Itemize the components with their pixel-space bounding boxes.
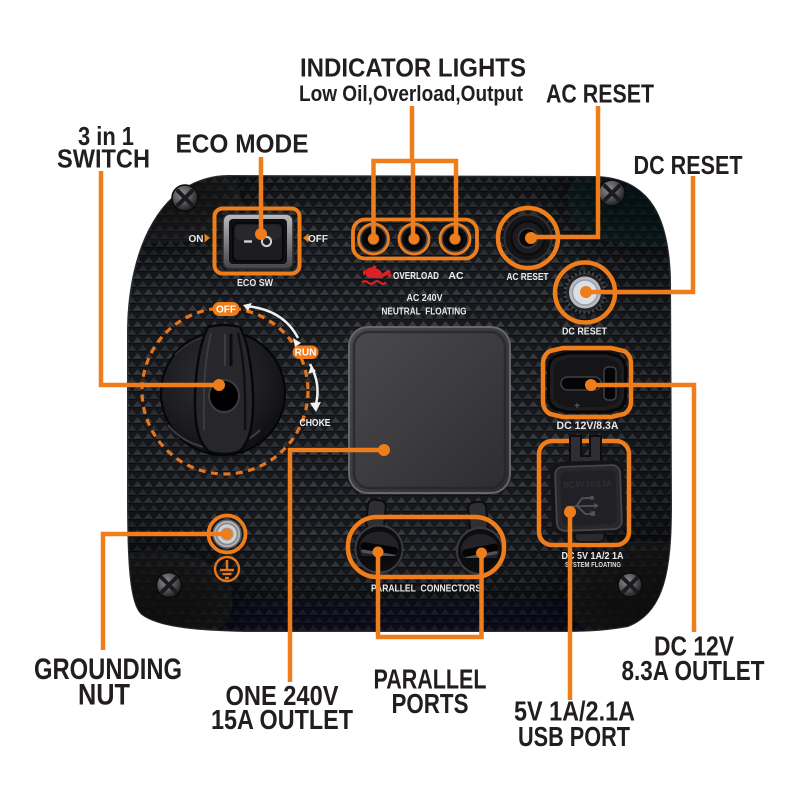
svg-text:SYSTEM FLOATING: SYSTEM FLOATING [565,562,621,569]
svg-text:8.3A OUTLET: 8.3A OUTLET [622,655,765,686]
svg-text:SWITCH: SWITCH [57,144,150,174]
svg-text:DC 5V 1A/2.1A: DC 5V 1A/2.1A [563,478,611,490]
svg-text:INDICATOR LIGHTS: INDICATOR LIGHTS [300,53,526,83]
svg-text:OFF: OFF [216,305,236,316]
svg-text:NUT: NUT [78,679,130,712]
svg-text:DC 12V/8.3A: DC 12V/8.3A [557,420,619,432]
svg-text:AC: AC [448,270,464,282]
svg-text:NEUTRAL FLOATING: NEUTRAL FLOATING [382,306,467,318]
svg-text:CHOKE: CHOKE [300,417,331,429]
svg-text:USB PORT: USB PORT [518,721,630,752]
svg-text:OVERLOAD: OVERLOAD [393,270,439,282]
svg-text:ECO SW: ECO SW [237,277,273,289]
svg-text:+: + [574,401,580,412]
svg-text:DC RESET: DC RESET [634,150,743,180]
svg-text:RUN: RUN [295,348,317,359]
svg-text:PORTS: PORTS [392,688,469,719]
svg-text:DC RESET: DC RESET [562,326,607,338]
svg-text:ECO MODE: ECO MODE [176,129,309,159]
svg-text:PARALLEL CONNECTORS: PARALLEL CONNECTORS [371,583,481,595]
svg-text:AC RESET: AC RESET [507,271,549,283]
svg-text:AC RESET: AC RESET [546,79,654,109]
svg-text:Low Oil,Overload,Output: Low Oil,Overload,Output [299,81,524,106]
svg-text:ON: ON [189,234,204,245]
svg-text:OFF: OFF [308,234,328,245]
svg-text:AC 240V: AC 240V [407,292,443,304]
svg-text:15A OUTLET: 15A OUTLET [211,704,353,735]
